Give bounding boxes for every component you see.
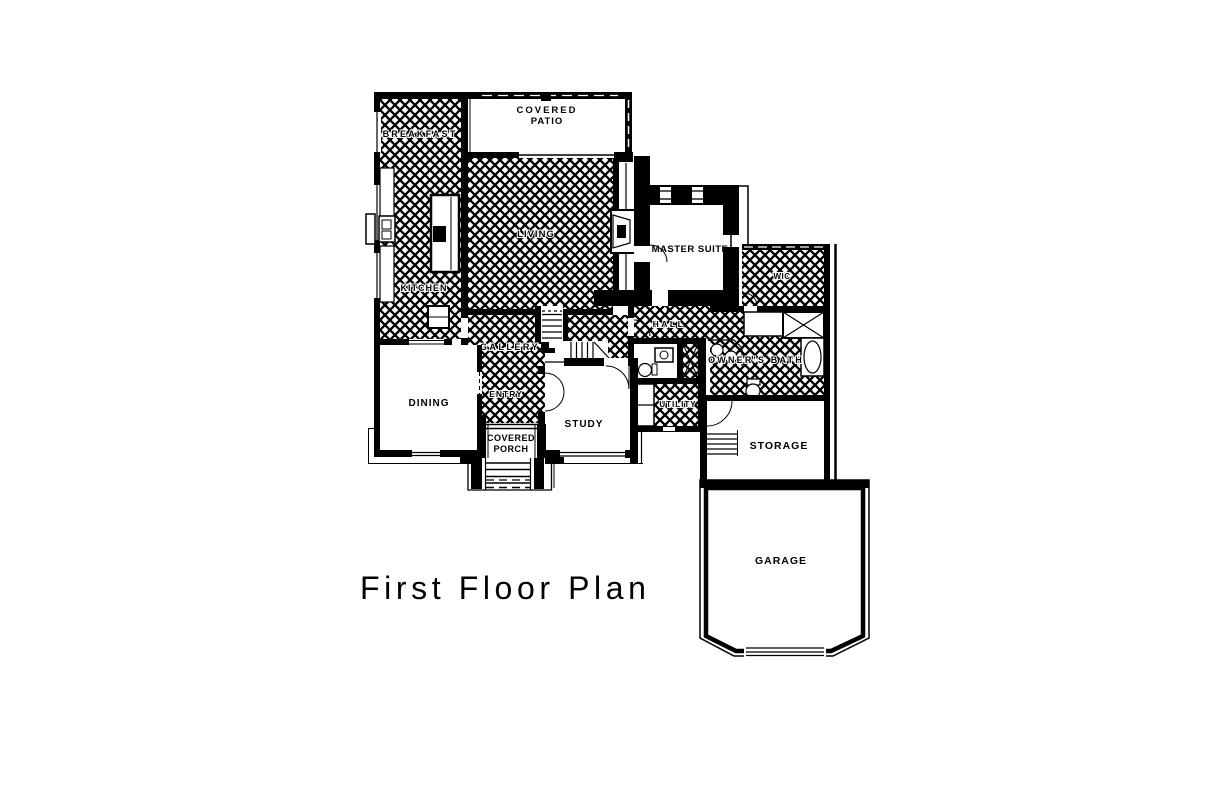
svg-text:COVERED: COVERED (487, 433, 535, 443)
svg-text:STUDY: STUDY (565, 419, 604, 430)
svg-text:PORCH: PORCH (493, 444, 528, 454)
svg-text:GALLERY: GALLERY (480, 342, 540, 352)
svg-text:OWNER'S BATH: OWNER'S BATH (708, 355, 804, 365)
svg-text:DINING: DINING (409, 398, 450, 409)
svg-text:BREAKFAST: BREAKFAST (383, 129, 458, 139)
svg-text:WIC: WIC (773, 272, 790, 281)
svg-text:First Floor Plan: First Floor Plan (360, 570, 651, 606)
svg-text:COVERED: COVERED (517, 105, 578, 116)
svg-text:ENTRY: ENTRY (489, 389, 523, 399)
svg-text:LIVING: LIVING (517, 229, 555, 240)
svg-text:HALL: HALL (653, 319, 686, 329)
svg-text:STORAGE: STORAGE (750, 440, 809, 452)
svg-text:UTILITY: UTILITY (659, 400, 696, 409)
svg-text:PATIO: PATIO (531, 116, 564, 127)
svg-text:MASTER SUITE: MASTER SUITE (652, 244, 729, 255)
svg-text:KITCHEN: KITCHEN (401, 283, 448, 293)
svg-text:GARAGE: GARAGE (755, 555, 807, 567)
